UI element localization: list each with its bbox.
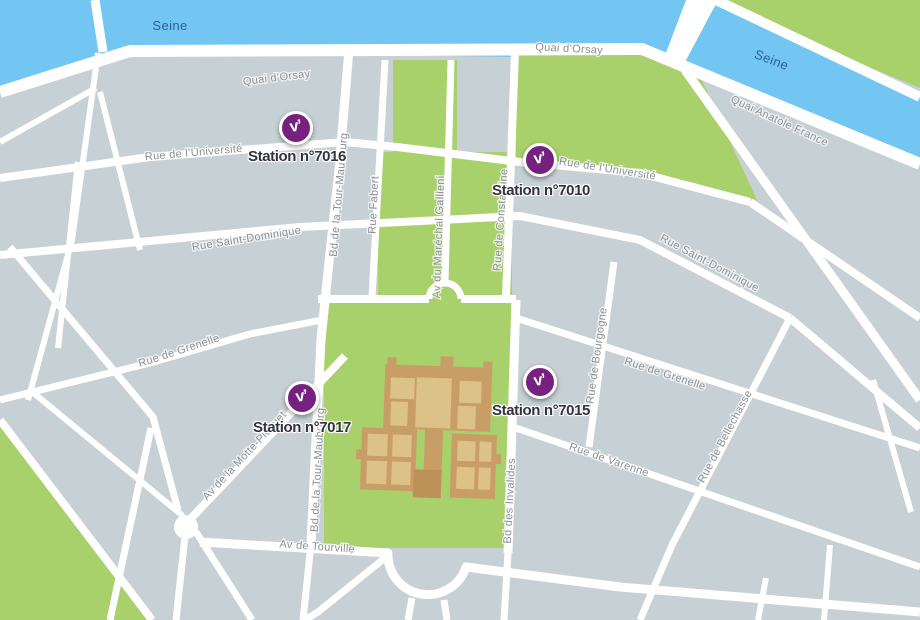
station-marker-7015[interactable]: v’ xyxy=(523,365,557,399)
junction-plaza xyxy=(174,515,198,539)
dome-church xyxy=(413,469,442,498)
station-marker-7016[interactable]: v’ xyxy=(279,111,313,145)
velib-icon: v’ xyxy=(289,118,303,136)
street-label-quai-dorsay-west: Quai d’Orsay xyxy=(242,68,311,88)
velib-icon: v’ xyxy=(295,388,309,406)
street-label-universite-west: Rue de l’Université xyxy=(144,143,243,163)
river-label-seine-west: Seine xyxy=(152,18,187,33)
street-label-grenelle-west: Rue de Grenelle xyxy=(137,332,221,370)
velib-icon: v’ xyxy=(533,150,547,168)
city-map[interactable]: Seine Seine Quai d’Orsay Quai d’Orsay Qu… xyxy=(0,0,920,620)
velib-icon: v’ xyxy=(533,372,547,390)
street-label-varenne: Rue de Varenne xyxy=(568,441,651,480)
station-label-7017: Station n°7017 xyxy=(253,419,351,436)
station-label-7016: Station n°7016 xyxy=(248,148,346,165)
station-marker-7017[interactable]: v’ xyxy=(285,381,319,415)
street-label-saint-dominique-east: Rue Saint-Dominique xyxy=(658,232,761,294)
station-marker-7010[interactable]: v’ xyxy=(523,143,557,177)
street-label-bellechasse: Rue de Bellechasse xyxy=(696,388,755,485)
street-label-bourgogne: Rue de Bourgogne xyxy=(584,307,609,405)
map-canvas: Seine Seine Quai d’Orsay Quai d’Orsay Qu… xyxy=(0,0,920,620)
station-label-7010: Station n°7010 xyxy=(492,182,590,199)
station-label-7015: Station n°7015 xyxy=(492,402,590,419)
